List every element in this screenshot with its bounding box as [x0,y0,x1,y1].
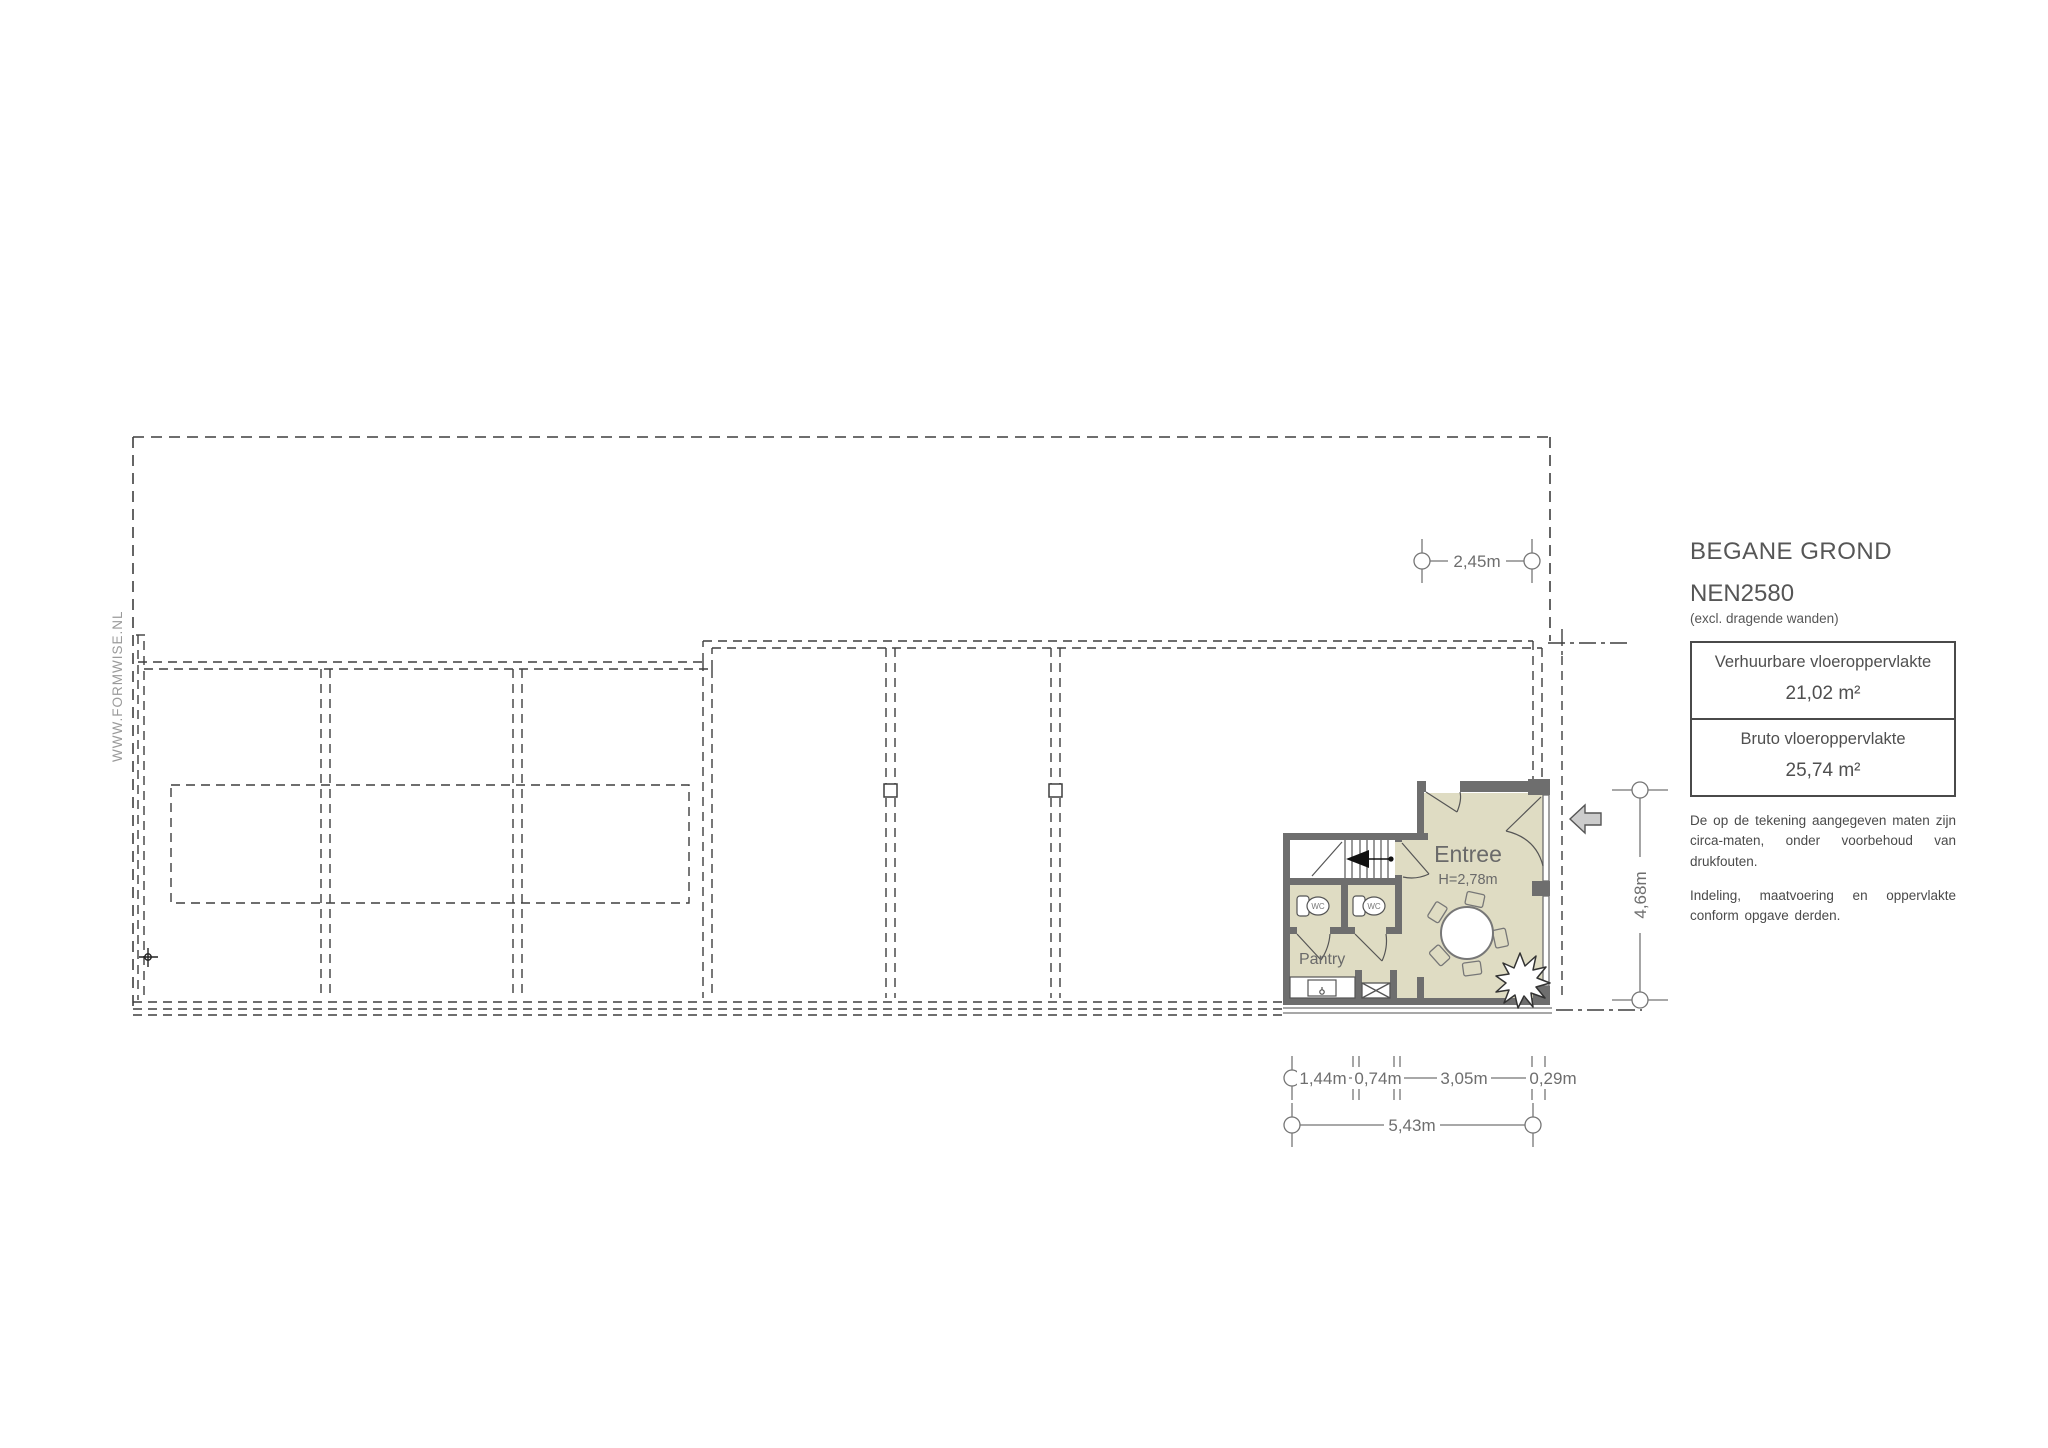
area-row-label: Verhuurbare vloeroppervlakte [1696,653,1950,672]
watermark-text: WWW.FORMWISE.NL [110,611,125,762]
disclaimer-2: Indeling, maatvoering en oppervlakte con… [1690,886,1956,927]
wc-left-label: WC [1311,902,1325,911]
interior-partitions [321,648,1060,998]
area-table: Verhuurbare vloeroppervlakte 21,02 m² Br… [1690,641,1956,797]
dim-seg4-label: 0,29m [1529,1069,1576,1088]
dim-seg3-label: 3,05m [1440,1069,1487,1088]
dim-right-height-label: 4,68m [1631,871,1650,918]
floorplan-page: WC WC Entree H=2 [0,0,2048,1448]
area-row-value: 25,74 m² [1696,760,1950,782]
disclaimer-1: De op de tekening aangegeven maten zijn … [1690,811,1956,872]
area-row-value: 21,02 m² [1696,683,1950,705]
survey-cross-marker [139,948,158,967]
pantry-sink [1290,977,1355,998]
plan-standard-note: (excl. dragende wanden) [1690,611,1956,626]
dim-seg2-label: 0,74m [1354,1069,1401,1088]
entree-unit: WC WC Entree H=2 [1283,779,1552,1013]
room-label-pantry: Pantry [1299,951,1345,968]
plan-title: BEGANE GROND [1690,538,1956,566]
wc-right-label: WC [1367,902,1381,911]
dim-top-width-label: 2,45m [1453,552,1500,571]
entrance-arrow-icon [1570,805,1601,833]
plan-standard: NEN2580 [1690,580,1956,608]
room-label-entree-height: H=2,78m [1438,872,1497,888]
unit-sill [1283,1008,1552,1013]
dim-total-label: 5,43m [1388,1116,1435,1135]
area-row-verhuurbaar: Verhuurbare vloeroppervlakte 21,02 m² [1692,643,1954,718]
doormat-box [1362,983,1390,998]
area-row-label: Bruto vloeroppervlakte [1696,730,1950,749]
room-label-entree: Entree [1434,841,1502,867]
dim-seg1-label: 1,44m [1299,1069,1346,1088]
column-markers [884,784,1062,797]
area-row-bruto: Bruto vloeroppervlakte 25,74 m² [1692,718,1954,795]
title-block: BEGANE GROND NEN2580 (excl. dragende wan… [1690,538,1956,926]
interior-dashed-zone [171,785,689,903]
